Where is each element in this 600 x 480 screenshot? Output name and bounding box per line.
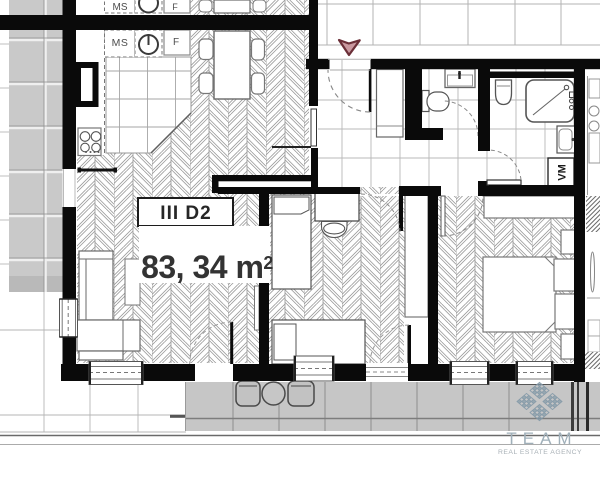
svg-text:MS: MS xyxy=(113,2,128,13)
svg-text:REAL ESTATE AGENCY: REAL ESTATE AGENCY xyxy=(498,449,582,456)
svg-text:83, 34 m2: 83, 34 m2 xyxy=(141,249,273,285)
svg-text:F: F xyxy=(173,37,179,48)
svg-text:VM: VM xyxy=(557,164,569,181)
svg-text:MS: MS xyxy=(112,37,129,49)
svg-text:F: F xyxy=(172,2,178,12)
svg-text:III D2: III D2 xyxy=(160,203,211,224)
svg-text:TEAM: TEAM xyxy=(506,429,577,448)
